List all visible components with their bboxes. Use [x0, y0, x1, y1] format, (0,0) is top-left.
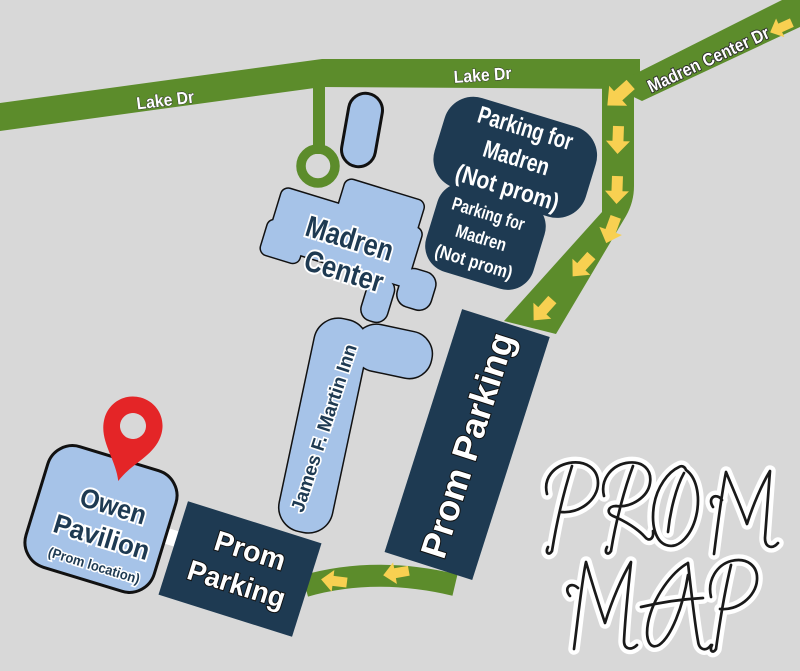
svg-text:Lake Dr: Lake Dr [453, 63, 512, 87]
